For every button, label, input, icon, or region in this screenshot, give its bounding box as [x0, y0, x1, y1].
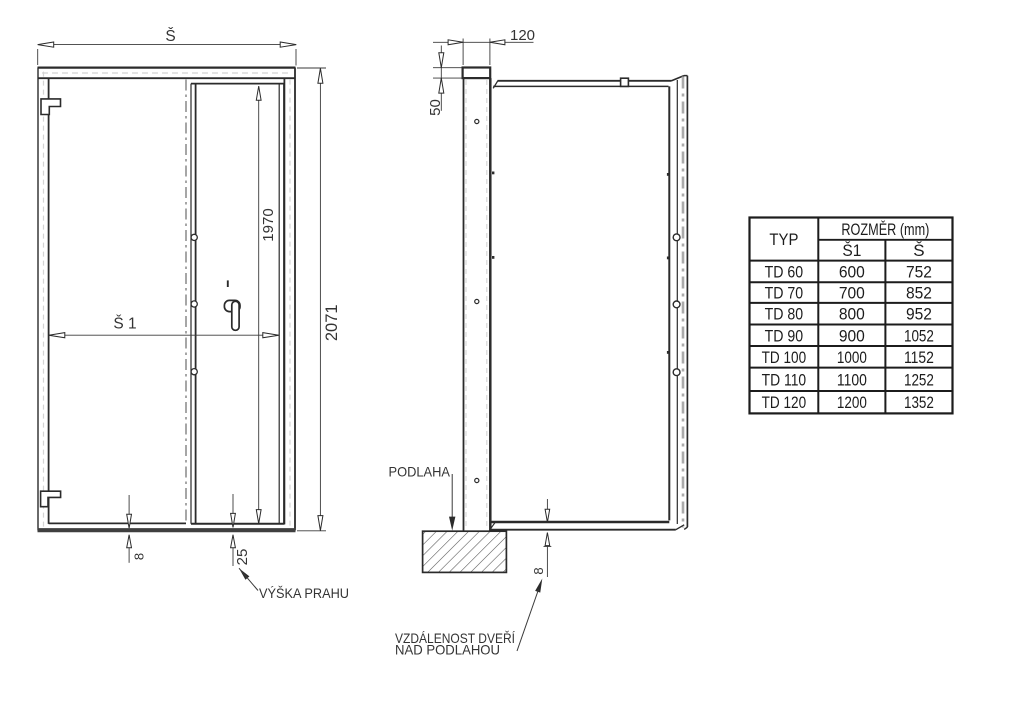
svg-text:2071: 2071	[323, 304, 341, 341]
svg-text:1152: 1152	[904, 348, 934, 367]
svg-text:952: 952	[906, 305, 932, 324]
svg-text:Š1: Š1	[842, 241, 861, 260]
svg-text:1000: 1000	[837, 348, 867, 367]
svg-text:600: 600	[839, 262, 865, 281]
svg-text:TD 100: TD 100	[762, 348, 807, 367]
svg-text:700: 700	[839, 284, 865, 303]
svg-text:50: 50	[427, 99, 444, 116]
svg-text:1970: 1970	[260, 208, 277, 241]
svg-text:1200: 1200	[837, 393, 867, 412]
svg-text:TD 60: TD 60	[765, 262, 804, 281]
svg-text:900: 900	[839, 326, 865, 345]
svg-text:800: 800	[839, 305, 865, 324]
svg-text:VÝŠKA PRAHU: VÝŠKA PRAHU	[259, 585, 349, 601]
svg-text:1100: 1100	[837, 370, 867, 389]
svg-text:NAD PODLAHOU: NAD PODLAHOU	[395, 643, 500, 658]
svg-text:120: 120	[510, 27, 535, 44]
svg-text:TD 110: TD 110	[762, 370, 807, 389]
svg-text:Š: Š	[165, 28, 175, 45]
svg-text:1252: 1252	[904, 370, 934, 389]
svg-text:1352: 1352	[904, 393, 934, 412]
svg-text:ROZMĚR (mm): ROZMĚR (mm)	[841, 220, 929, 239]
svg-text:PODLAHA: PODLAHA	[389, 464, 451, 479]
svg-text:8: 8	[131, 553, 146, 560]
svg-text:752: 752	[906, 262, 932, 281]
svg-text:852: 852	[906, 284, 932, 303]
svg-text:TD 70: TD 70	[765, 284, 804, 303]
svg-text:TD 120: TD 120	[762, 393, 807, 412]
svg-text:25: 25	[234, 549, 251, 566]
svg-text:TD 80: TD 80	[765, 305, 804, 324]
svg-text:TYP: TYP	[769, 230, 798, 249]
svg-text:Š 1: Š 1	[113, 316, 136, 333]
svg-text:TD 90: TD 90	[765, 326, 804, 345]
svg-text:8: 8	[531, 567, 546, 574]
svg-text:Š: Š	[913, 241, 924, 260]
svg-text:1052: 1052	[904, 326, 934, 345]
